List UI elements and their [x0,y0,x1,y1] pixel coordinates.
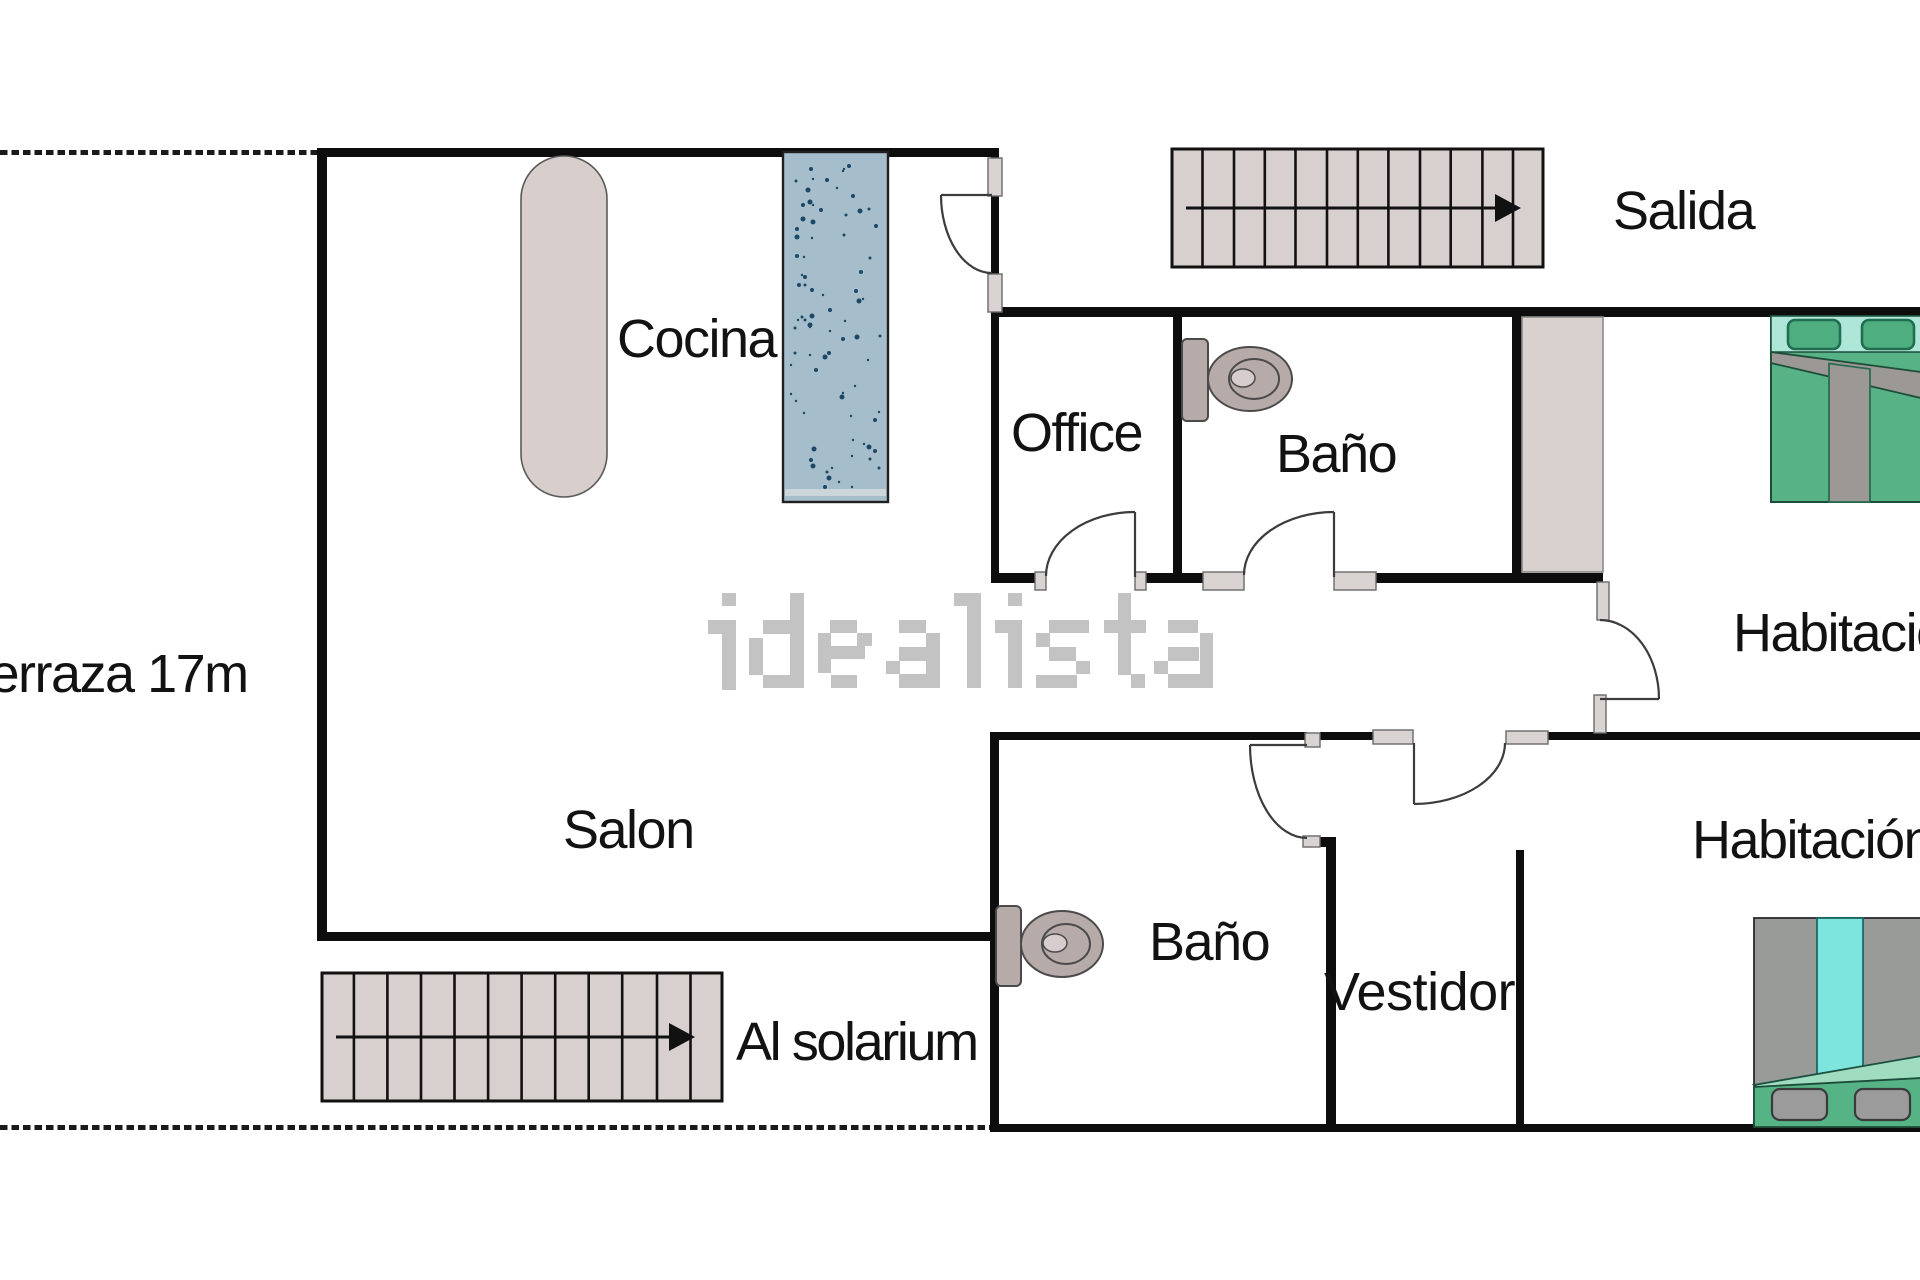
svg-text:Vestidor: Vestidor [1324,962,1516,1022]
svg-text:Salon: Salon [563,800,694,860]
svg-text:Cocina: Cocina [617,309,779,369]
svg-text:Office: Office [1011,403,1142,463]
svg-text:Habitación: Habitación [1692,810,1920,870]
svg-text:Baño: Baño [1149,912,1269,972]
svg-text:Salida: Salida [1613,181,1757,241]
svg-text:Habitación: Habitación [1733,603,1920,663]
svg-text:Terraza 17m: Terraza 17m [0,644,248,704]
svg-text:Baño: Baño [1276,424,1396,484]
svg-text:Al solarium: Al solarium [736,1012,977,1072]
